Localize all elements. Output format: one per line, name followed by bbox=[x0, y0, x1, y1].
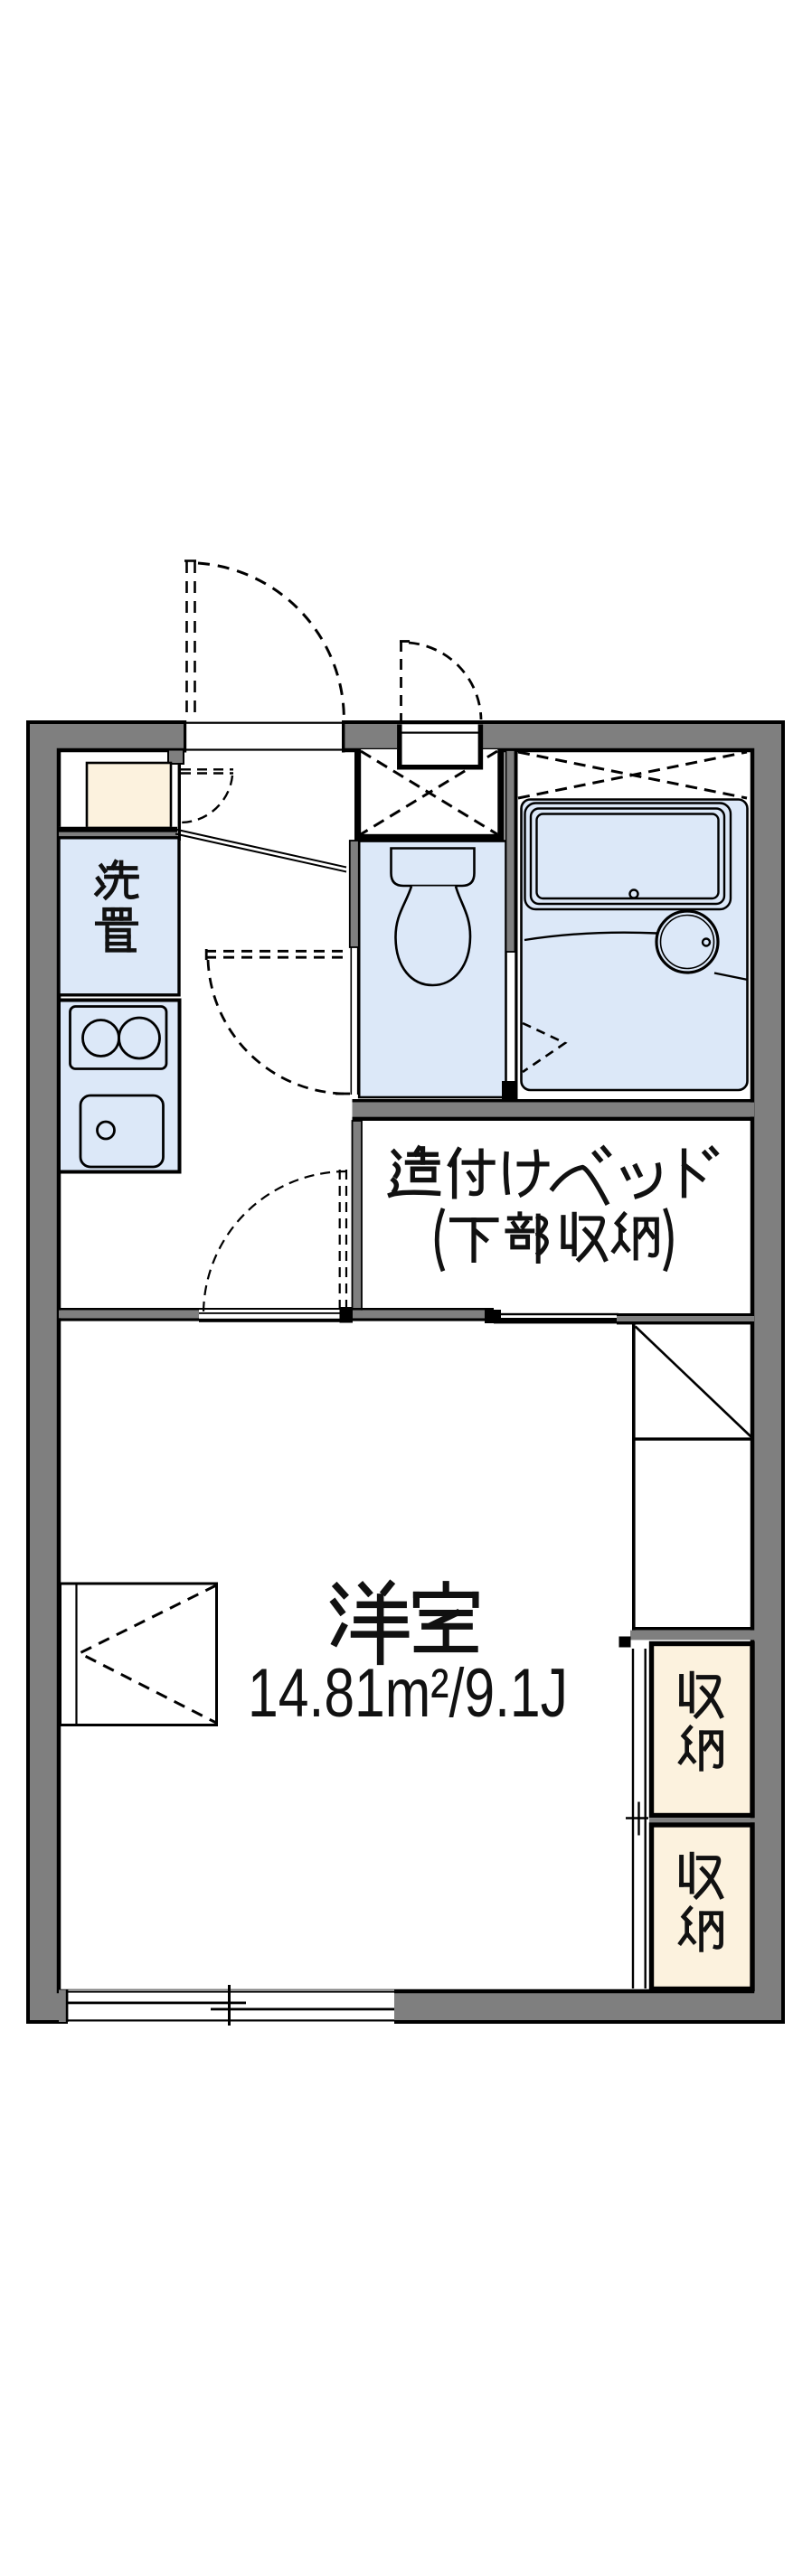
svg-text:14.81m²/9.1J: 14.81m²/9.1J bbox=[248, 1655, 568, 1732]
